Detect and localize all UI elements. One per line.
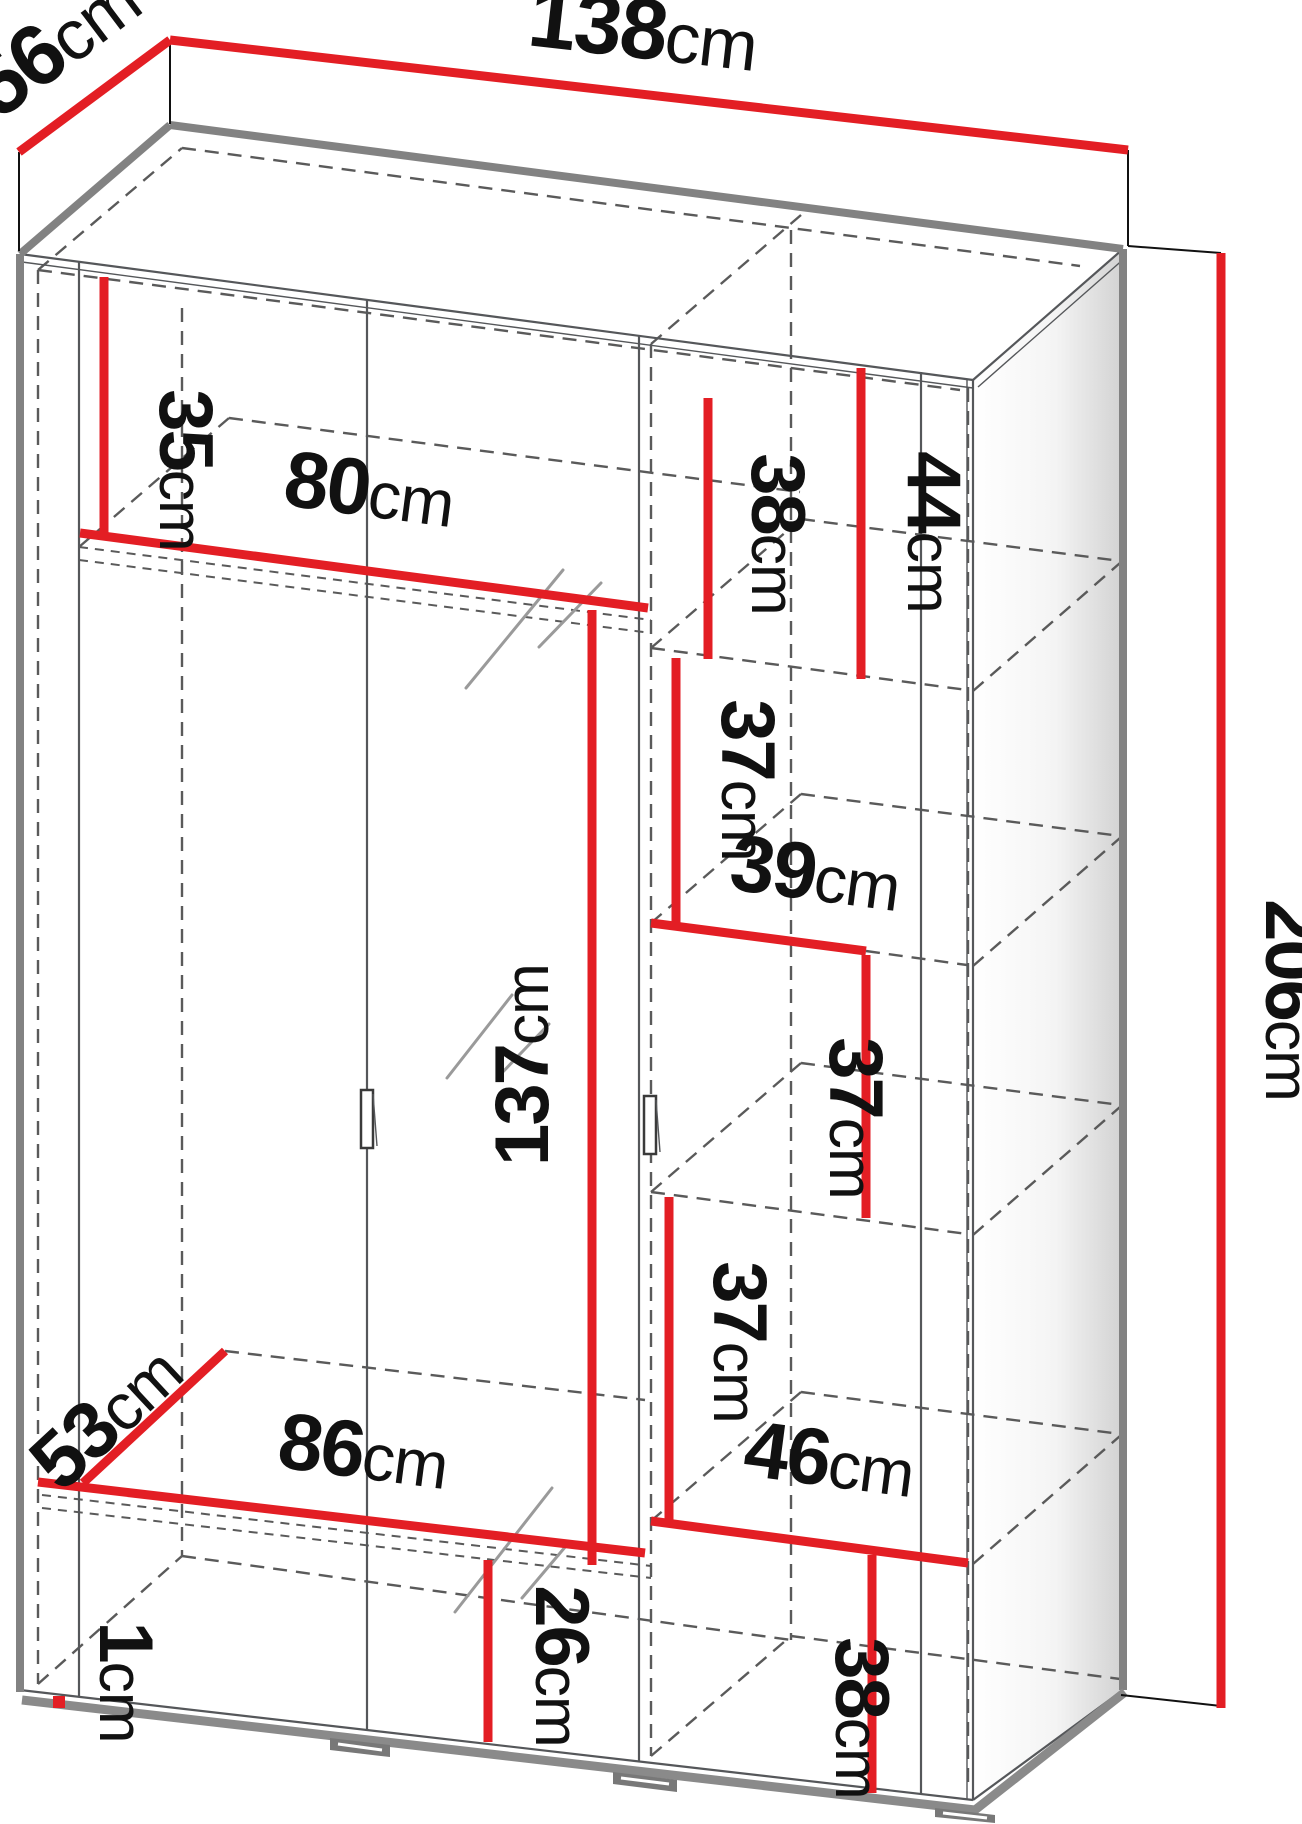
dim-label-plinth-height: 1cm <box>83 1621 168 1742</box>
dim-label-right-back-top: 44cm <box>891 451 976 613</box>
dim-label-right-shelf-c: 37cm <box>697 1261 782 1423</box>
dim-label-top-shelf-drop: 35cm <box>143 389 228 551</box>
dim-label-width-top: 138cm <box>524 0 763 90</box>
dim-label-right-shelf-b: 37cm <box>813 1037 898 1199</box>
diagram-canvas: 138cm 56cm 206cm 35cm 80cm 137cm 38cm 44… <box>0 0 1302 1824</box>
right-side-face <box>973 249 1123 1800</box>
dim-label-right-front-top: 38cm <box>735 453 820 615</box>
dim-label-bottom-space: 26cm <box>519 1585 604 1747</box>
dim-label-door-height: 137cm <box>480 964 565 1166</box>
plinth-gap-marker <box>53 1696 65 1708</box>
dim-label-right-shelf-low: 38cm <box>819 1637 904 1799</box>
handle-right-icon <box>644 1096 656 1154</box>
dim-label-height-right: 206cm <box>1249 899 1302 1101</box>
handle-left-icon <box>361 1090 373 1148</box>
wardrobe-dimension-diagram: 138cm 56cm 206cm 35cm 80cm 137cm 38cm 44… <box>0 0 1302 1824</box>
